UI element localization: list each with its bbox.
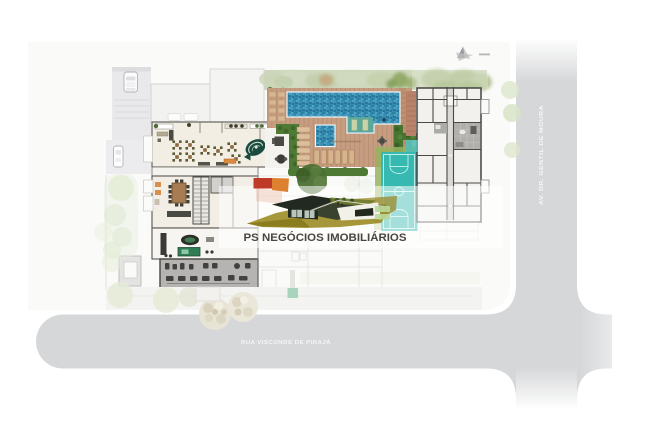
svg-text:RUA VISCONDE DE PIRAJÁ: RUA VISCONDE DE PIRAJÁ bbox=[241, 339, 331, 346]
svg-text:PS NEGÓCIOS IMOBILIÁRIOS: PS NEGÓCIOS IMOBILIÁRIOS bbox=[244, 231, 408, 244]
svg-text:AV. DR. GENTIL DE MOURA: AV. DR. GENTIL DE MOURA bbox=[539, 105, 545, 205]
